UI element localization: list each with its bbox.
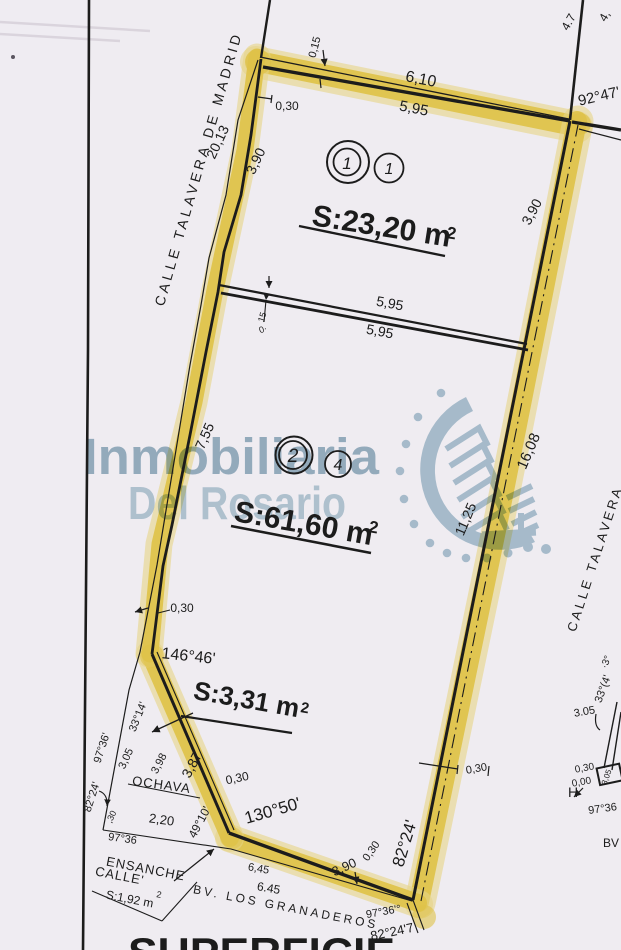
svg-text:1: 1 [342,154,351,173]
svg-text:SUPERFICIE: SUPERFICIE [128,929,395,950]
svg-text:BV: BV [603,836,619,850]
svg-text:0,30: 0,30 [170,601,194,615]
svg-text:1: 1 [385,161,394,178]
svg-text:2: 2 [287,446,299,467]
svg-text:H: H [568,784,578,800]
svg-text:0,30: 0,30 [275,99,299,113]
svg-text:4: 4 [334,457,343,474]
